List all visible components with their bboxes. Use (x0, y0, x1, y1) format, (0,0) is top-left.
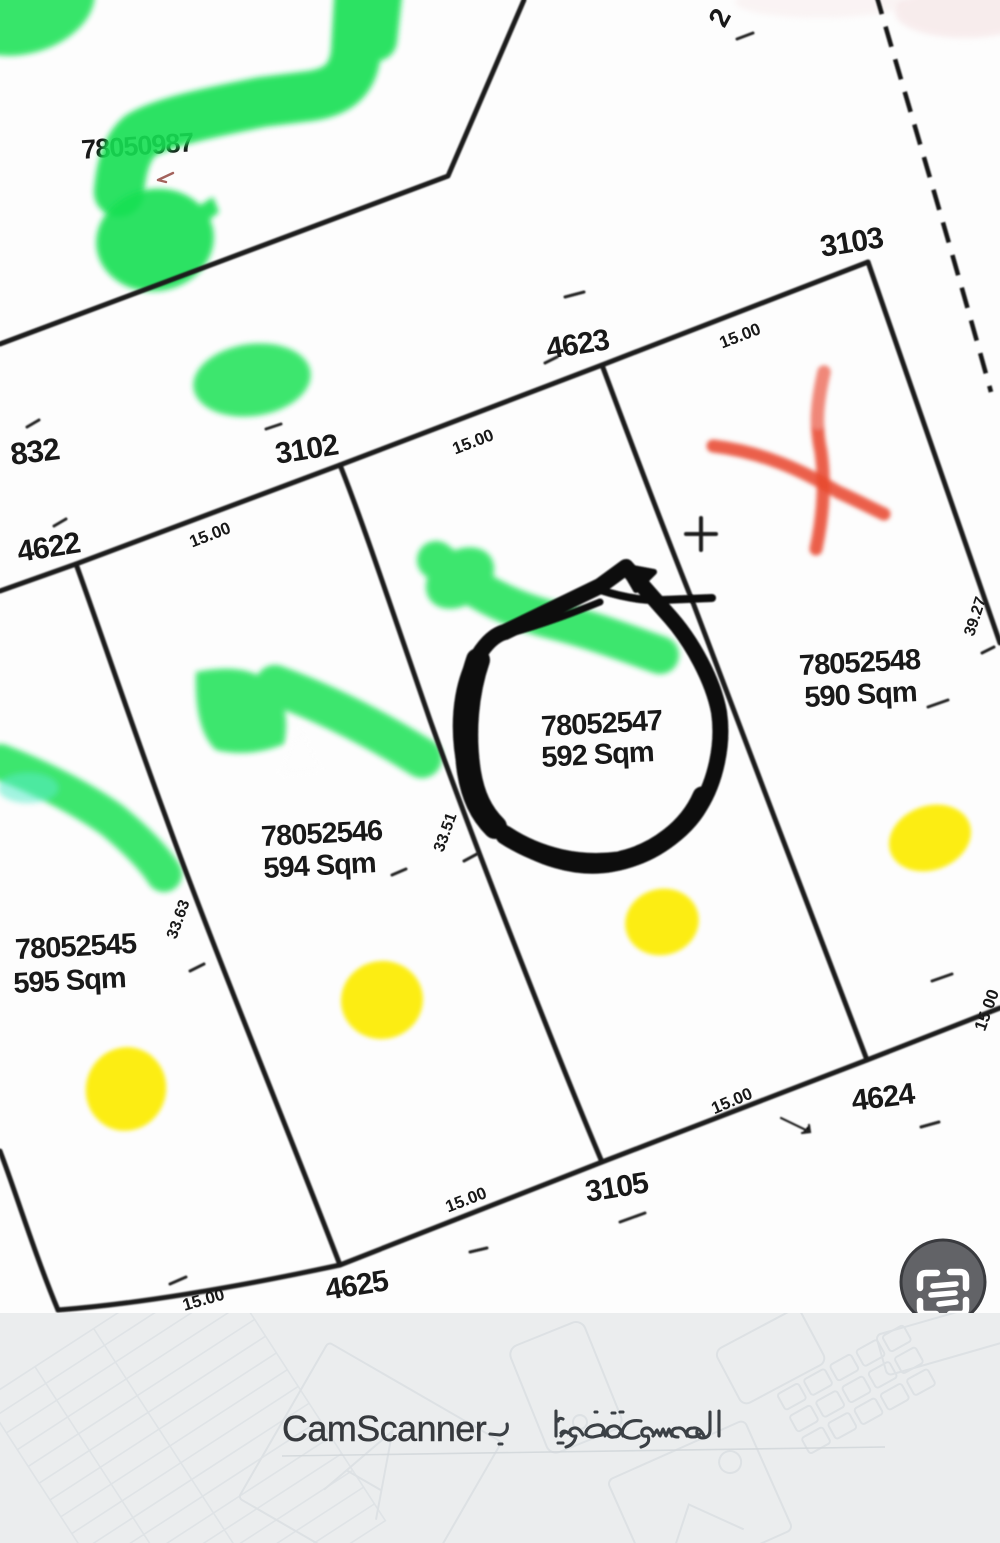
svg-text:592 Sqm: 592 Sqm (541, 736, 655, 774)
svg-text:595 Sqm: 595 Sqm (13, 962, 127, 1000)
svg-text:594 Sqm: 594 Sqm (263, 847, 377, 885)
svg-text:CamScanner: CamScanner (282, 1408, 487, 1449)
svg-text:590 Sqm: 590 Sqm (804, 676, 918, 714)
svg-text:78052545: 78052545 (14, 928, 137, 966)
svg-text:832: 832 (8, 431, 61, 472)
